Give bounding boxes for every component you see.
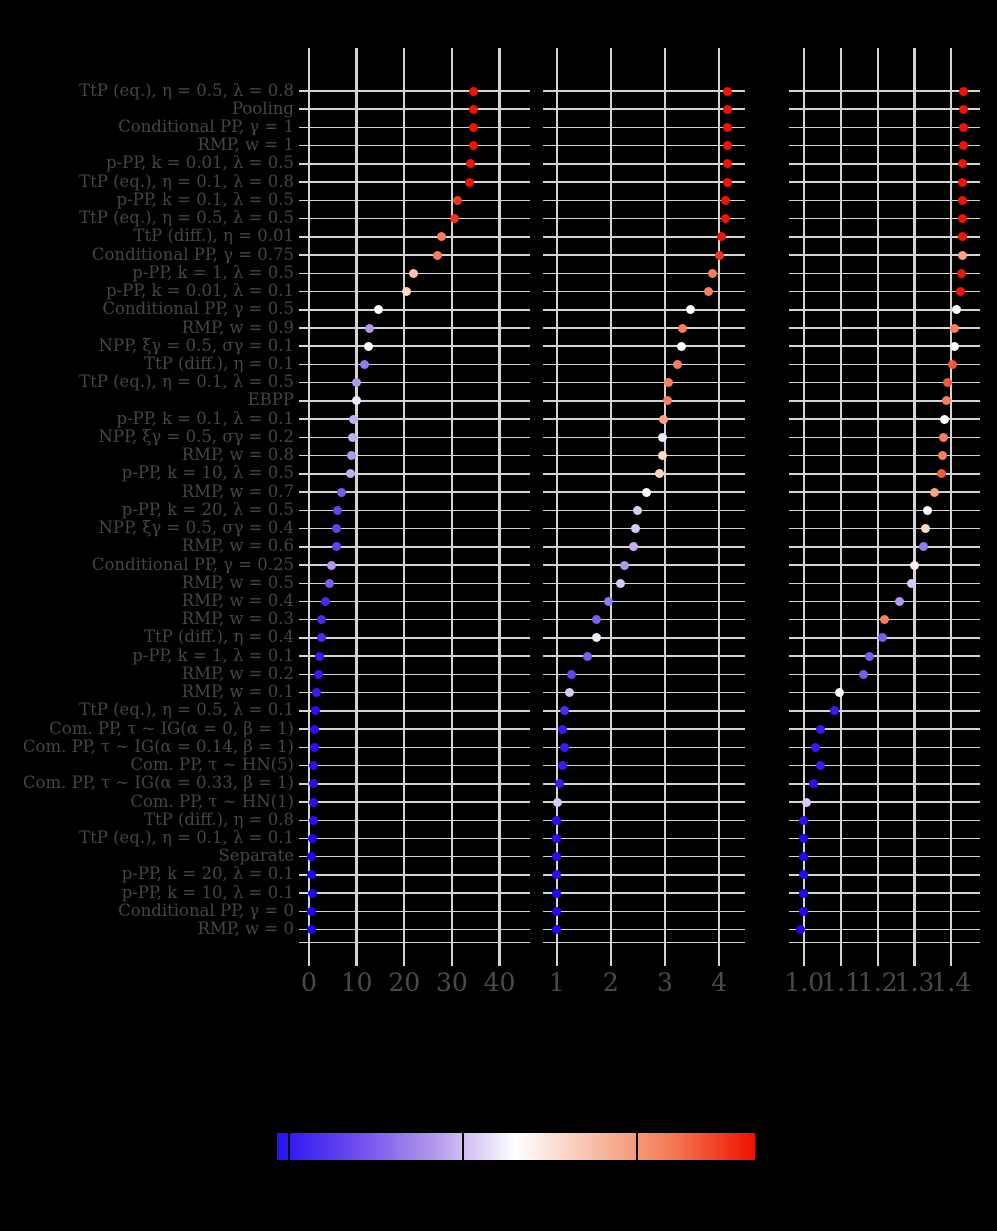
row-line bbox=[543, 163, 745, 165]
row-line bbox=[789, 90, 980, 92]
row-line bbox=[789, 291, 980, 293]
row-line bbox=[299, 692, 530, 694]
row-label: p-PP, k = 20, λ = 0.1 bbox=[2, 865, 294, 883]
row-line bbox=[543, 820, 745, 822]
data-point bbox=[959, 87, 968, 96]
data-point bbox=[311, 706, 320, 715]
row-label: Separate bbox=[2, 847, 294, 865]
row-line bbox=[299, 236, 530, 238]
data-point bbox=[948, 360, 957, 369]
row-line bbox=[543, 856, 745, 858]
data-point bbox=[959, 123, 968, 132]
row-line bbox=[543, 236, 745, 238]
data-point bbox=[583, 652, 592, 661]
row-line bbox=[789, 163, 980, 165]
x-tick-label: 1.4 bbox=[931, 968, 971, 997]
grid-line bbox=[308, 48, 310, 966]
row-label: p-PP, k = 10, λ = 0.5 bbox=[2, 464, 294, 482]
x-tick-label: 0 bbox=[301, 968, 317, 997]
data-point bbox=[723, 87, 732, 96]
row-line bbox=[789, 674, 980, 676]
data-point bbox=[952, 305, 961, 314]
data-point bbox=[592, 615, 601, 624]
data-point bbox=[799, 834, 808, 843]
data-point bbox=[450, 214, 459, 223]
axis-bottom-spine bbox=[299, 942, 530, 944]
data-point bbox=[352, 378, 361, 387]
data-point bbox=[723, 105, 732, 114]
grid-line bbox=[556, 48, 558, 966]
row-line bbox=[543, 108, 745, 110]
data-point bbox=[346, 469, 355, 478]
grid-line bbox=[498, 48, 500, 966]
data-point bbox=[723, 159, 732, 168]
row-label: TtP (diff.), η = 0.01 bbox=[2, 227, 294, 245]
data-point bbox=[365, 324, 374, 333]
row-label: Com. PP, τ ~ IG(α = 0, β = 1) bbox=[2, 720, 294, 738]
data-point bbox=[364, 342, 373, 351]
data-point bbox=[723, 123, 732, 132]
row-line bbox=[789, 820, 980, 822]
data-point bbox=[811, 743, 820, 752]
grid-line bbox=[950, 48, 952, 966]
row-label: Conditional PP, γ = 0.25 bbox=[2, 556, 294, 574]
row-line bbox=[789, 929, 980, 931]
data-point bbox=[309, 761, 318, 770]
row-line bbox=[789, 108, 980, 110]
row-label: p-PP, k = 0.01, λ = 0.1 bbox=[2, 282, 294, 300]
row-line bbox=[543, 291, 745, 293]
row-label: Conditional PP, γ = 0.5 bbox=[2, 300, 294, 318]
row-line bbox=[299, 874, 530, 876]
row-line bbox=[299, 674, 530, 676]
data-point bbox=[307, 852, 316, 861]
data-point bbox=[664, 378, 673, 387]
row-line bbox=[299, 200, 530, 202]
data-point bbox=[348, 433, 357, 442]
data-point bbox=[802, 798, 811, 807]
data-point bbox=[469, 105, 478, 114]
row-label: NPP, ξγ = 0.5, σγ = 0.1 bbox=[2, 337, 294, 355]
row-line bbox=[299, 108, 530, 110]
data-point bbox=[307, 870, 316, 879]
grid-line bbox=[877, 48, 879, 966]
row-line bbox=[543, 655, 745, 657]
row-line bbox=[299, 327, 530, 329]
data-point bbox=[830, 706, 839, 715]
data-point bbox=[958, 196, 967, 205]
x-tick-label: 10 bbox=[341, 968, 373, 997]
data-point bbox=[686, 305, 695, 314]
row-line bbox=[299, 218, 530, 220]
data-point bbox=[956, 287, 965, 296]
colorbar bbox=[277, 1133, 755, 1160]
row-line bbox=[543, 619, 745, 621]
data-point bbox=[552, 816, 561, 825]
row-label: EBPP bbox=[2, 391, 294, 409]
row-line bbox=[543, 728, 745, 730]
row-label: p-PP, k = 10, λ = 0.1 bbox=[2, 884, 294, 902]
row-line bbox=[543, 382, 745, 384]
row-line bbox=[789, 528, 980, 530]
data-point bbox=[663, 396, 672, 405]
data-point bbox=[552, 889, 561, 898]
data-point bbox=[895, 597, 904, 606]
row-label: Conditional PP, γ = 0 bbox=[2, 902, 294, 920]
row-label: RMP, w = 0 bbox=[2, 920, 294, 938]
row-line bbox=[299, 254, 530, 256]
row-line bbox=[299, 856, 530, 858]
row-line bbox=[789, 856, 980, 858]
row-line bbox=[543, 747, 745, 749]
row-label: TtP (eq.), η = 0.5, λ = 0.5 bbox=[2, 209, 294, 227]
data-point bbox=[958, 232, 967, 241]
data-point bbox=[555, 779, 564, 788]
figure: TtP (eq.), η = 0.5, λ = 0.8PoolingCondit… bbox=[0, 0, 997, 1231]
data-point bbox=[938, 451, 947, 460]
row-line bbox=[299, 491, 530, 493]
row-line bbox=[543, 418, 745, 420]
row-line bbox=[299, 655, 530, 657]
x-tick-label: 2 bbox=[603, 968, 619, 997]
data-point bbox=[629, 542, 638, 551]
data-point bbox=[959, 105, 968, 114]
row-label: RMP, w = 0.4 bbox=[2, 592, 294, 610]
row-label: TtP (diff.), η = 0.8 bbox=[2, 811, 294, 829]
row-line bbox=[299, 163, 530, 165]
data-point bbox=[939, 433, 948, 442]
row-line bbox=[543, 892, 745, 894]
data-point bbox=[312, 688, 321, 697]
data-point bbox=[878, 633, 887, 642]
data-point bbox=[659, 415, 668, 424]
data-point bbox=[332, 524, 341, 533]
data-point bbox=[469, 141, 478, 150]
data-point bbox=[631, 524, 640, 533]
grid-line bbox=[664, 48, 666, 966]
row-line bbox=[543, 218, 745, 220]
x-tick-label: 1.2 bbox=[858, 968, 898, 997]
data-point bbox=[809, 779, 818, 788]
data-point bbox=[552, 925, 561, 934]
row-line bbox=[299, 345, 530, 347]
row-line bbox=[299, 309, 530, 311]
row-line bbox=[789, 200, 980, 202]
grid-line bbox=[451, 48, 453, 966]
row-line bbox=[789, 273, 980, 275]
row-label: TtP (diff.), η = 0.1 bbox=[2, 355, 294, 373]
x-tick-label: 1 bbox=[549, 968, 565, 997]
row-line bbox=[789, 801, 980, 803]
grid-line bbox=[718, 48, 720, 966]
data-point bbox=[314, 670, 323, 679]
row-line bbox=[789, 892, 980, 894]
data-point bbox=[374, 305, 383, 314]
row-line bbox=[543, 583, 745, 585]
x-tick-label: 40 bbox=[484, 968, 516, 997]
data-point bbox=[958, 214, 967, 223]
x-tick-label: 1.3 bbox=[895, 968, 935, 997]
row-label: p-PP, k = 1, λ = 0.1 bbox=[2, 647, 294, 665]
data-point bbox=[642, 488, 651, 497]
row-line bbox=[299, 929, 530, 931]
row-line bbox=[789, 838, 980, 840]
row-line bbox=[789, 145, 980, 147]
row-label: p-PP, k = 0.01, λ = 0.5 bbox=[2, 154, 294, 172]
row-line bbox=[299, 364, 530, 366]
row-line bbox=[543, 400, 745, 402]
data-point bbox=[558, 725, 567, 734]
data-point bbox=[309, 816, 318, 825]
data-point bbox=[704, 287, 713, 296]
x-tick-label: 20 bbox=[388, 968, 420, 997]
data-point bbox=[678, 324, 687, 333]
row-label: RMP, w = 0.5 bbox=[2, 574, 294, 592]
row-line bbox=[299, 601, 530, 603]
row-line bbox=[543, 327, 745, 329]
data-point bbox=[799, 889, 808, 898]
row-label: RMP, w = 1 bbox=[2, 136, 294, 154]
data-point bbox=[673, 360, 682, 369]
row-line bbox=[789, 236, 980, 238]
data-point bbox=[958, 159, 967, 168]
data-point bbox=[433, 251, 442, 260]
data-point bbox=[317, 633, 326, 642]
data-point bbox=[816, 725, 825, 734]
data-point bbox=[558, 761, 567, 770]
row-line bbox=[543, 473, 745, 475]
x-tick-label: 1.0 bbox=[784, 968, 824, 997]
data-point bbox=[921, 524, 930, 533]
row-label: RMP, w = 0.7 bbox=[2, 483, 294, 501]
data-point bbox=[633, 506, 642, 515]
data-point bbox=[553, 798, 562, 807]
data-point bbox=[352, 396, 361, 405]
data-point bbox=[592, 633, 601, 642]
axis-bottom-spine bbox=[789, 942, 980, 944]
row-line bbox=[299, 455, 530, 457]
data-point bbox=[937, 469, 946, 478]
grid-line bbox=[610, 48, 612, 966]
data-point bbox=[325, 579, 334, 588]
row-line bbox=[789, 911, 980, 913]
row-line bbox=[789, 127, 980, 129]
row-line bbox=[299, 728, 530, 730]
data-point bbox=[799, 907, 808, 916]
data-point bbox=[402, 287, 411, 296]
row-line bbox=[299, 747, 530, 749]
row-line bbox=[299, 892, 530, 894]
data-point bbox=[552, 852, 561, 861]
grid-line bbox=[913, 48, 915, 966]
colorbar-tick bbox=[462, 1133, 464, 1160]
row-line bbox=[543, 145, 745, 147]
row-line bbox=[789, 437, 980, 439]
data-point bbox=[723, 141, 732, 150]
row-line bbox=[299, 473, 530, 475]
row-line bbox=[543, 455, 745, 457]
data-point bbox=[835, 688, 844, 697]
grid-line bbox=[840, 48, 842, 966]
row-label: Com. PP, τ ~ IG(α = 0.33, β = 1) bbox=[2, 774, 294, 792]
row-line bbox=[789, 874, 980, 876]
axis-bottom-spine bbox=[543, 942, 745, 944]
row-line bbox=[543, 929, 745, 931]
data-point bbox=[552, 870, 561, 879]
row-line bbox=[789, 564, 980, 566]
row-label: RMP, w = 0.2 bbox=[2, 665, 294, 683]
data-point bbox=[919, 542, 928, 551]
data-point bbox=[567, 670, 576, 679]
row-line bbox=[789, 491, 980, 493]
row-line bbox=[299, 437, 530, 439]
data-point bbox=[958, 178, 967, 187]
row-line bbox=[543, 546, 745, 548]
row-line bbox=[543, 90, 745, 92]
x-tick-label: 4 bbox=[711, 968, 727, 997]
data-point bbox=[360, 360, 369, 369]
row-line bbox=[299, 127, 530, 129]
data-point bbox=[708, 269, 717, 278]
data-point bbox=[910, 561, 919, 570]
row-line bbox=[543, 710, 745, 712]
row-label: TtP (eq.), η = 0.1, λ = 0.5 bbox=[2, 373, 294, 391]
row-label: Com. PP, τ ~ HN(1) bbox=[2, 793, 294, 811]
row-line bbox=[299, 619, 530, 621]
row-line bbox=[299, 838, 530, 840]
row-line bbox=[299, 145, 530, 147]
row-line bbox=[789, 418, 980, 420]
row-line bbox=[543, 874, 745, 876]
x-tick-label: 30 bbox=[436, 968, 468, 997]
row-label: TtP (eq.), η = 0.1, λ = 0.1 bbox=[2, 829, 294, 847]
data-point bbox=[620, 561, 629, 570]
row-line bbox=[299, 801, 530, 803]
row-line bbox=[543, 564, 745, 566]
data-point bbox=[930, 488, 939, 497]
data-point bbox=[959, 141, 968, 150]
colorbar-tick bbox=[636, 1133, 638, 1160]
row-line bbox=[299, 637, 530, 639]
data-point bbox=[309, 798, 318, 807]
data-point bbox=[880, 615, 889, 624]
row-line bbox=[543, 801, 745, 803]
x-tick-label: 1.1 bbox=[821, 968, 861, 997]
data-point bbox=[552, 834, 561, 843]
row-line bbox=[299, 820, 530, 822]
row-label: RMP, w = 0.1 bbox=[2, 683, 294, 701]
x-tick-label: 3 bbox=[657, 968, 673, 997]
data-point bbox=[307, 925, 316, 934]
row-line bbox=[789, 710, 980, 712]
data-point bbox=[957, 269, 966, 278]
row-label: Conditional PP, γ = 0.75 bbox=[2, 246, 294, 264]
row-line bbox=[789, 546, 980, 548]
row-line bbox=[543, 783, 745, 785]
data-point bbox=[950, 324, 959, 333]
row-line bbox=[299, 783, 530, 785]
row-label: p-PP, k = 0.1, λ = 0.1 bbox=[2, 410, 294, 428]
row-line bbox=[543, 528, 745, 530]
row-line bbox=[543, 309, 745, 311]
colorbar-tick bbox=[288, 1133, 290, 1160]
row-line bbox=[543, 601, 745, 603]
row-label: Com. PP, τ ~ HN(5) bbox=[2, 756, 294, 774]
row-line bbox=[543, 127, 745, 129]
data-point bbox=[616, 579, 625, 588]
row-line bbox=[789, 218, 980, 220]
row-line bbox=[543, 437, 745, 439]
row-line bbox=[299, 90, 530, 92]
row-line bbox=[789, 655, 980, 657]
row-label: p-PP, k = 20, λ = 0.5 bbox=[2, 501, 294, 519]
row-line bbox=[299, 181, 530, 183]
row-line bbox=[789, 473, 980, 475]
row-label: NPP, ξγ = 0.5, σγ = 0.4 bbox=[2, 519, 294, 537]
row-line bbox=[299, 291, 530, 293]
data-point bbox=[717, 232, 726, 241]
data-point bbox=[799, 870, 808, 879]
data-point bbox=[721, 214, 730, 223]
data-point bbox=[799, 816, 808, 825]
row-label: RMP, w = 0.6 bbox=[2, 537, 294, 555]
data-point bbox=[469, 87, 478, 96]
data-point bbox=[349, 415, 358, 424]
data-point bbox=[310, 743, 319, 752]
data-point bbox=[453, 196, 462, 205]
row-line bbox=[789, 692, 980, 694]
grid-line bbox=[355, 48, 357, 966]
row-line bbox=[543, 637, 745, 639]
row-label: NPP, ξγ = 0.5, σγ = 0.2 bbox=[2, 428, 294, 446]
data-point bbox=[317, 615, 326, 624]
row-line bbox=[789, 583, 980, 585]
data-point bbox=[958, 251, 967, 260]
row-line bbox=[789, 510, 980, 512]
row-line bbox=[789, 181, 980, 183]
row-label: TtP (eq.), η = 0.1, λ = 0.8 bbox=[2, 173, 294, 191]
data-point bbox=[307, 907, 316, 916]
data-point bbox=[308, 834, 317, 843]
data-point bbox=[327, 561, 336, 570]
data-point bbox=[332, 542, 341, 551]
data-point bbox=[677, 342, 686, 351]
data-point bbox=[309, 779, 318, 788]
grid-line bbox=[803, 48, 805, 966]
row-line bbox=[543, 364, 745, 366]
data-point bbox=[560, 743, 569, 752]
data-point bbox=[409, 269, 418, 278]
row-label: Conditional PP, γ = 1 bbox=[2, 118, 294, 136]
data-point bbox=[565, 688, 574, 697]
data-point bbox=[337, 488, 346, 497]
grid-line bbox=[403, 48, 405, 966]
data-point bbox=[799, 852, 808, 861]
row-line bbox=[299, 911, 530, 913]
data-point bbox=[940, 415, 949, 424]
data-point bbox=[816, 761, 825, 770]
data-point bbox=[655, 469, 664, 478]
data-point bbox=[465, 178, 474, 187]
row-line bbox=[789, 601, 980, 603]
row-label: RMP, w = 0.3 bbox=[2, 610, 294, 628]
data-point bbox=[950, 342, 959, 351]
data-point bbox=[308, 889, 317, 898]
row-line bbox=[543, 200, 745, 202]
row-line bbox=[299, 710, 530, 712]
row-line bbox=[789, 254, 980, 256]
data-point bbox=[310, 725, 319, 734]
